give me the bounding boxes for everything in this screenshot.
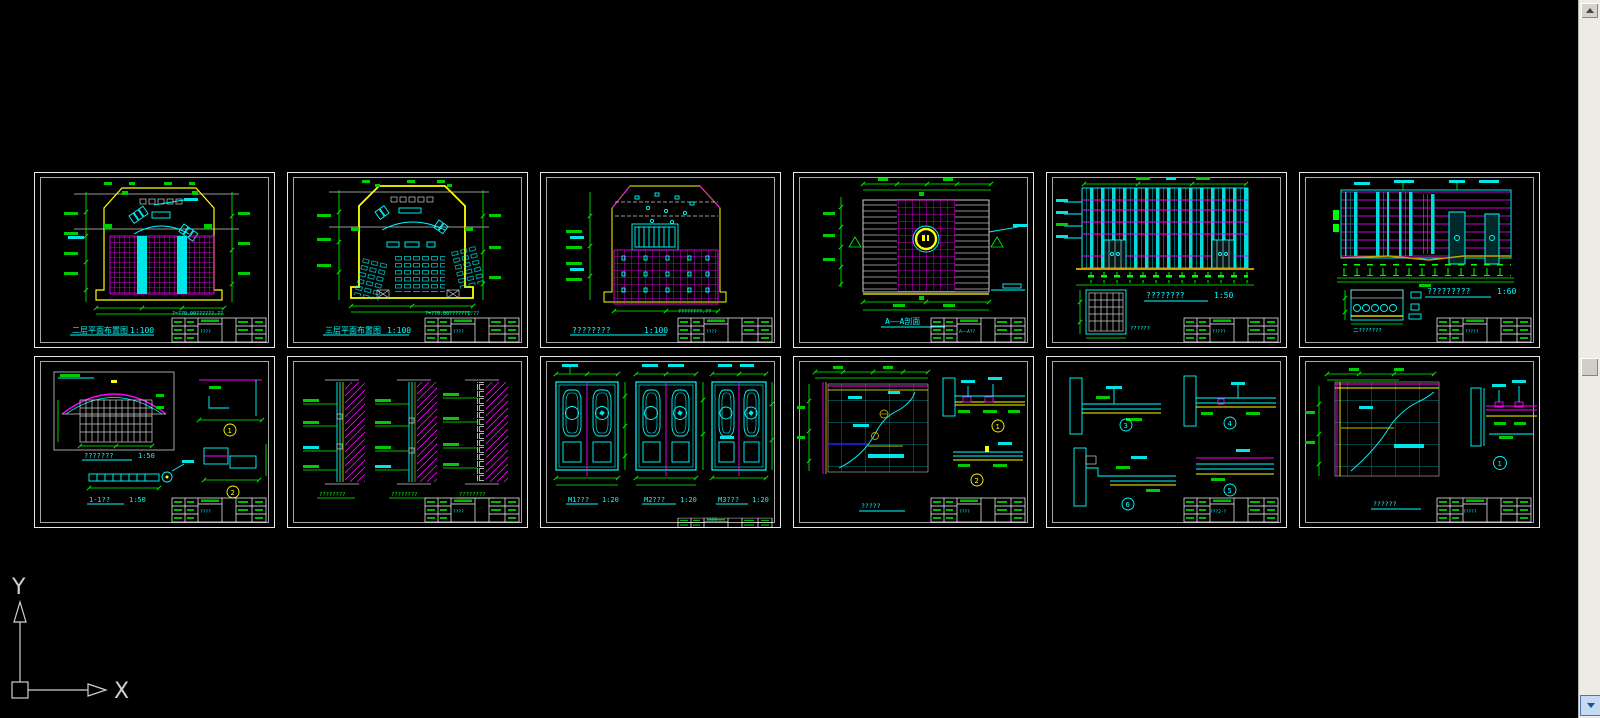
svg-text:5: 5 [1228, 487, 1232, 495]
scrollbar-thumb[interactable] [1581, 358, 1598, 376]
drawing-title: ???????? [1146, 291, 1185, 300]
grid-marks [104, 182, 195, 185]
detail-1 [943, 377, 1025, 416]
cad-model-space[interactable]: 二层平面布置图 1:100 ?=??0.00??????.?? ???? 三层 [0, 0, 1600, 718]
title-block-name: A——A?? [959, 329, 976, 335]
sheet-ceiling-plan[interactable]: ???????? 1:100 ????????.?? ???? [540, 172, 781, 348]
drawing-scale: 1:100 [130, 326, 154, 335]
drawing-title: 三层平面布置图 [325, 325, 381, 335]
title-block [678, 518, 772, 528]
detail-6 [1074, 448, 1176, 506]
title-block-name: ????? [1465, 329, 1479, 335]
title-block-name: ???? [453, 329, 464, 335]
door-m3 [710, 364, 774, 480]
sheet-note: ????????.?? [678, 309, 711, 315]
door-title: M2??? [644, 496, 665, 504]
svg-text:1: 1 [1498, 460, 1502, 468]
door-scale: 1:20 [752, 496, 769, 504]
sheet-note: ?=??0.00??????.?? [172, 311, 223, 317]
ucs-icon: Y X [0, 556, 150, 716]
sheet-note: ?=??0.00??????1.?? [425, 311, 479, 317]
seat-bank-right [451, 246, 485, 289]
drawing-title: ????? [861, 502, 881, 510]
panel-detail [1078, 290, 1126, 338]
section-title: 1-1?? [89, 496, 110, 504]
sheet-ceiling-detail-a[interactable]: 1 2 ????? ???? [793, 356, 1034, 528]
aisle-left [137, 236, 147, 294]
detail-5 [1196, 449, 1274, 481]
sheet-ceiling-details-3-6[interactable]: 3 4 6 5 ???2-? [1046, 356, 1287, 528]
title-block-name: ???? [959, 509, 970, 515]
svg-text:2: 2 [975, 477, 979, 485]
sheet-ceiling-detail-b[interactable]: 1 ?????? ????? [1299, 356, 1540, 528]
detail-1 [197, 380, 264, 422]
vertical-scrollbar[interactable] [1578, 0, 1600, 718]
detail-2 [202, 444, 266, 482]
seating-grid [110, 236, 214, 294]
drawing-title: ????????? [1427, 287, 1471, 296]
title-block [172, 318, 266, 342]
title-block [425, 498, 519, 522]
door-m1 [554, 364, 627, 485]
title-block-name: ???? [706, 517, 717, 523]
drawing-title: ??????? [84, 452, 114, 460]
drawing-title: A——A剖面 [885, 316, 920, 326]
drawing-title: ?????? [1373, 500, 1397, 508]
center-dome [913, 226, 939, 252]
left-leaders [1056, 199, 1082, 238]
drawing-scale: 1:50 [138, 452, 155, 460]
scrollbar-down-button[interactable] [1580, 695, 1600, 716]
plan-detail [1305, 368, 1439, 476]
dimensions-left [823, 197, 843, 287]
title-block-name: ???? [706, 329, 717, 335]
section-1-1 [87, 460, 194, 490]
section-scale: 1:50 [129, 496, 146, 504]
ucs-y-label: Y [11, 575, 26, 600]
marker-triangle-right [991, 237, 1003, 247]
section-detail [1471, 380, 1537, 446]
sheet-wall-sections[interactable]: ???????? ???????? ???????? ???? [287, 356, 528, 528]
top-leaders [1354, 180, 1499, 190]
canopy-view [54, 372, 174, 450]
door-title: M1??? [568, 496, 589, 504]
parapet-detail [1343, 290, 1403, 324]
ceiling-fixtures [635, 193, 694, 224]
drawing-title: 二层平面布置图 [72, 325, 128, 335]
sheet-elevation-front[interactable]: ???????? 1:50 ?????? ????? [1046, 172, 1287, 348]
drawing-scale: 1:60 [1497, 287, 1516, 296]
door-title: M3??? [718, 496, 739, 504]
dimensions-bottom [861, 296, 991, 310]
drawing-title: ???????? [572, 326, 611, 335]
sheet-section-a-a[interactable]: A——A剖面 A——A?? [793, 172, 1034, 348]
title-block [172, 498, 266, 522]
svg-text:4: 4 [1228, 420, 1232, 428]
title-block [931, 318, 1025, 342]
marker-triangle-left [849, 237, 861, 247]
aisle-right [177, 236, 187, 294]
section-caption: ???????? [319, 492, 346, 498]
sheet-plan-floor-seating[interactable]: 三层平面布置图 1:100 ?=??0.00??????1.?? ???? [287, 172, 528, 348]
door-right [1212, 240, 1234, 268]
detail-2 [953, 442, 1023, 467]
scroll-up-icon [1586, 8, 1594, 13]
scroll-down-icon [1587, 703, 1595, 708]
title-block-name: ???? [200, 329, 211, 335]
seat-bank-center [393, 254, 445, 292]
detail-4 [1184, 376, 1276, 426]
door-m2 [634, 364, 705, 485]
title-block [931, 498, 1025, 522]
door-left [1104, 240, 1126, 268]
detail-label: 二??????? [1353, 328, 1382, 334]
drawing-scale: 1:100 [644, 326, 668, 335]
dimensions-top [861, 178, 993, 196]
svg-text:2: 2 [231, 489, 235, 497]
stair-cross-right [447, 290, 459, 298]
section-caption: ???????? [459, 492, 486, 498]
title-block-name: ???? [200, 509, 211, 515]
title-block-name: ???? [453, 509, 464, 515]
scrollbar-up-button[interactable] [1581, 3, 1598, 18]
title-block-name: ???2-? [1210, 509, 1227, 515]
sheet-elevation-side[interactable]: ????????? 1:60 二??????? ????? [1299, 172, 1540, 348]
title-block [1184, 498, 1278, 522]
anchor-row [1343, 264, 1511, 276]
drawing-scale: 1:50 [1214, 291, 1233, 300]
sheet-canopy-detail[interactable]: ??????? 1:50 1-1?? 1:50 1 2 ???? [34, 356, 275, 528]
title-block-name: ????? [1212, 329, 1226, 335]
detail-3 [1070, 378, 1161, 434]
section-caption: ???????? [391, 492, 418, 498]
title-block [678, 318, 772, 342]
grille [632, 224, 678, 250]
wall-section-2 [375, 380, 437, 484]
plan-detail [797, 366, 930, 474]
title-block [1184, 318, 1278, 342]
door-scale: 1:20 [602, 496, 619, 504]
wall-section-1 [303, 380, 365, 484]
door-scale: 1:20 [680, 496, 697, 504]
ucs-x-label: X [114, 679, 129, 704]
drawing-scale: 1:100 [387, 326, 411, 335]
detail-cluster [1409, 292, 1421, 319]
stage-furniture [375, 206, 448, 247]
svg-text:6: 6 [1126, 501, 1130, 509]
title-block [1437, 318, 1531, 342]
dimensions-top [1082, 177, 1248, 186]
svg-text:3: 3 [1124, 422, 1128, 430]
title-block [1437, 498, 1531, 522]
anchor-row [1082, 272, 1248, 283]
title-block [425, 318, 519, 342]
sheet-plan-floor-magenta[interactable]: 二层平面布置图 1:100 ?=??0.00??????.?? ???? [34, 172, 275, 348]
svg-text:1: 1 [228, 427, 232, 435]
wall-section-3 [443, 380, 508, 484]
detail-label: ?????? [1130, 326, 1150, 332]
svg-text:1: 1 [996, 423, 1000, 431]
title-block-name: ????? [1463, 509, 1477, 515]
sheet-door-details[interactable]: M1??? 1:20 M2??? 1:20 M3??? 1:20 ???? [540, 356, 781, 528]
